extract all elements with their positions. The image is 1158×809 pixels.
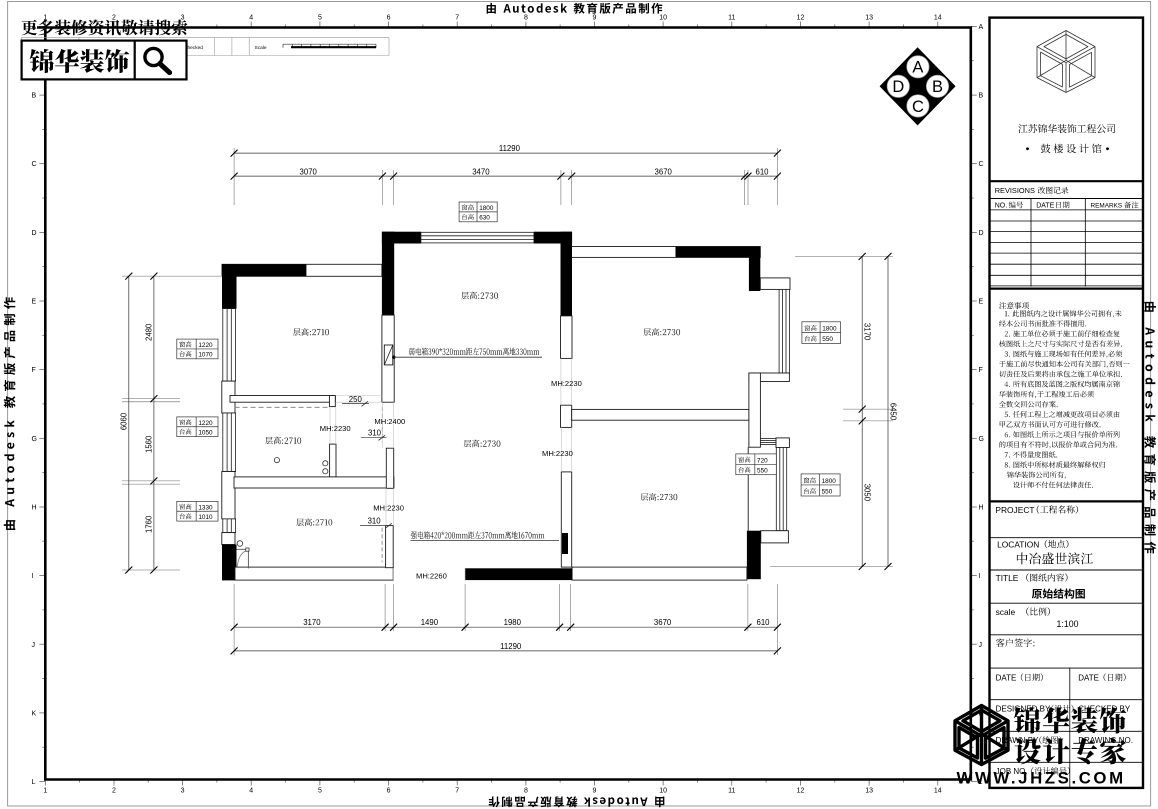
svg-text:13: 13	[865, 15, 873, 22]
svg-text:NO.: NO.	[995, 203, 1008, 210]
svg-text:12: 12	[797, 15, 805, 22]
svg-text:550: 550	[822, 489, 833, 496]
svg-text:610: 610	[755, 167, 769, 176]
svg-text:MH:2230: MH:2230	[320, 424, 351, 433]
svg-text:14: 14	[934, 15, 942, 22]
svg-text:LOCATION: LOCATION	[997, 539, 1039, 549]
svg-text:E: E	[32, 299, 37, 306]
svg-text:8: 8	[524, 788, 528, 795]
svg-text:D: D	[32, 230, 37, 237]
svg-text:WWW.JHZS.COM: WWW.JHZS.COM	[957, 769, 1126, 788]
svg-text:1490: 1490	[421, 618, 439, 627]
svg-text:REVISIONS: REVISIONS	[995, 186, 1035, 195]
svg-text:H: H	[979, 505, 984, 512]
svg-text:3070: 3070	[300, 167, 318, 176]
svg-text:REMARKS: REMARKS	[1091, 203, 1123, 210]
svg-text:550: 550	[757, 467, 768, 474]
svg-text:10: 10	[659, 15, 667, 22]
svg-text:L: L	[32, 779, 36, 786]
svg-text:C: C	[32, 161, 37, 168]
svg-text:E: E	[979, 299, 984, 306]
svg-text:1560: 1560	[145, 435, 154, 453]
svg-text:G: G	[979, 436, 984, 443]
svg-text:DATE: DATE	[1036, 203, 1054, 210]
svg-text:2: 2	[112, 15, 116, 22]
svg-text:630: 630	[479, 215, 490, 222]
svg-text:11: 11	[728, 15, 735, 22]
svg-text:B: B	[979, 93, 984, 100]
svg-text:J: J	[979, 642, 983, 649]
svg-text:A: A	[979, 24, 984, 31]
svg-text:610: 610	[756, 618, 770, 627]
svg-text:7: 7	[455, 15, 459, 22]
svg-text:5: 5	[318, 788, 322, 795]
svg-text:11290: 11290	[500, 642, 522, 651]
svg-text:MH:2260: MH:2260	[416, 571, 447, 580]
svg-text:3470: 3470	[472, 167, 490, 176]
svg-text:1: 1	[43, 788, 47, 795]
svg-text:3: 3	[181, 15, 185, 22]
svg-text:13: 13	[865, 788, 873, 795]
svg-text:I: I	[32, 573, 34, 580]
svg-text:scale: scale	[996, 607, 1016, 617]
svg-text:9: 9	[593, 15, 597, 22]
svg-text:B: B	[32, 93, 37, 100]
svg-text:11: 11	[728, 788, 735, 795]
svg-text:1800: 1800	[822, 478, 837, 485]
svg-text:1220: 1220	[198, 420, 213, 427]
svg-text:1220: 1220	[198, 342, 213, 349]
svg-text:A: A	[912, 59, 923, 77]
svg-text:3050: 3050	[863, 484, 872, 502]
svg-text:1330: 1330	[198, 504, 213, 511]
svg-text:250: 250	[349, 395, 363, 404]
svg-text:1760: 1760	[145, 515, 154, 533]
svg-text:6060: 6060	[119, 412, 128, 430]
svg-text:G: G	[32, 436, 37, 443]
svg-text:MH:2230: MH:2230	[542, 449, 573, 458]
svg-text:C: C	[912, 98, 924, 116]
svg-text:1050: 1050	[198, 429, 213, 436]
svg-text:1980: 1980	[504, 618, 522, 627]
svg-text:DESIGNED BY: DESIGNED BY	[996, 705, 1051, 714]
svg-text:MH:2400: MH:2400	[374, 417, 405, 426]
svg-text:3170: 3170	[303, 618, 321, 627]
svg-text:12: 12	[797, 788, 805, 795]
svg-text:B: B	[932, 78, 943, 96]
svg-text:310: 310	[368, 516, 382, 525]
svg-text:6: 6	[387, 15, 391, 22]
svg-text:8: 8	[524, 15, 528, 22]
svg-text:3: 3	[181, 788, 185, 795]
svg-text:550: 550	[822, 336, 833, 343]
svg-text:Scale: Scale	[255, 45, 267, 51]
svg-text:F: F	[32, 367, 36, 374]
svg-text:310: 310	[368, 428, 382, 437]
svg-text:2480: 2480	[145, 323, 154, 341]
svg-text:2: 2	[112, 788, 116, 795]
svg-text:DRAWING NO.: DRAWING NO.	[1078, 736, 1133, 745]
svg-text:D: D	[892, 78, 904, 96]
svg-text:J: J	[32, 642, 36, 649]
svg-text:H: H	[32, 505, 37, 512]
svg-text:I: I	[979, 573, 981, 580]
svg-text:MH:2230: MH:2230	[551, 379, 582, 388]
svg-text:1800: 1800	[822, 326, 837, 333]
svg-text:4: 4	[249, 788, 253, 795]
svg-text:K: K	[32, 710, 37, 717]
svg-text:1070: 1070	[198, 352, 213, 359]
svg-text:3170: 3170	[863, 323, 872, 341]
svg-text:14: 14	[934, 788, 942, 795]
svg-text:DATE: DATE	[1078, 673, 1099, 682]
svg-text:720: 720	[757, 457, 768, 464]
svg-text:11290: 11290	[499, 144, 521, 153]
svg-text:6: 6	[387, 788, 391, 795]
svg-text:3670: 3670	[655, 167, 673, 176]
svg-text:F: F	[979, 367, 983, 374]
svg-text:C: C	[979, 161, 984, 168]
svg-text:1800: 1800	[479, 205, 494, 212]
svg-text:MH:2230: MH:2230	[373, 504, 404, 513]
svg-text:5: 5	[318, 15, 322, 22]
svg-text:10: 10	[659, 788, 667, 795]
svg-text:1:100: 1:100	[1057, 619, 1079, 629]
svg-text:D: D	[979, 230, 984, 237]
svg-text:4: 4	[249, 15, 253, 22]
svg-text:DATE: DATE	[996, 673, 1017, 682]
svg-text:7: 7	[455, 788, 459, 795]
svg-text:9: 9	[593, 788, 597, 795]
svg-text:3670: 3670	[654, 618, 672, 627]
svg-text:TITLE: TITLE	[996, 573, 1019, 583]
svg-text:6450: 6450	[888, 403, 897, 421]
svg-text:PROJECT: PROJECT	[995, 505, 1034, 515]
svg-text:1010: 1010	[198, 514, 213, 521]
